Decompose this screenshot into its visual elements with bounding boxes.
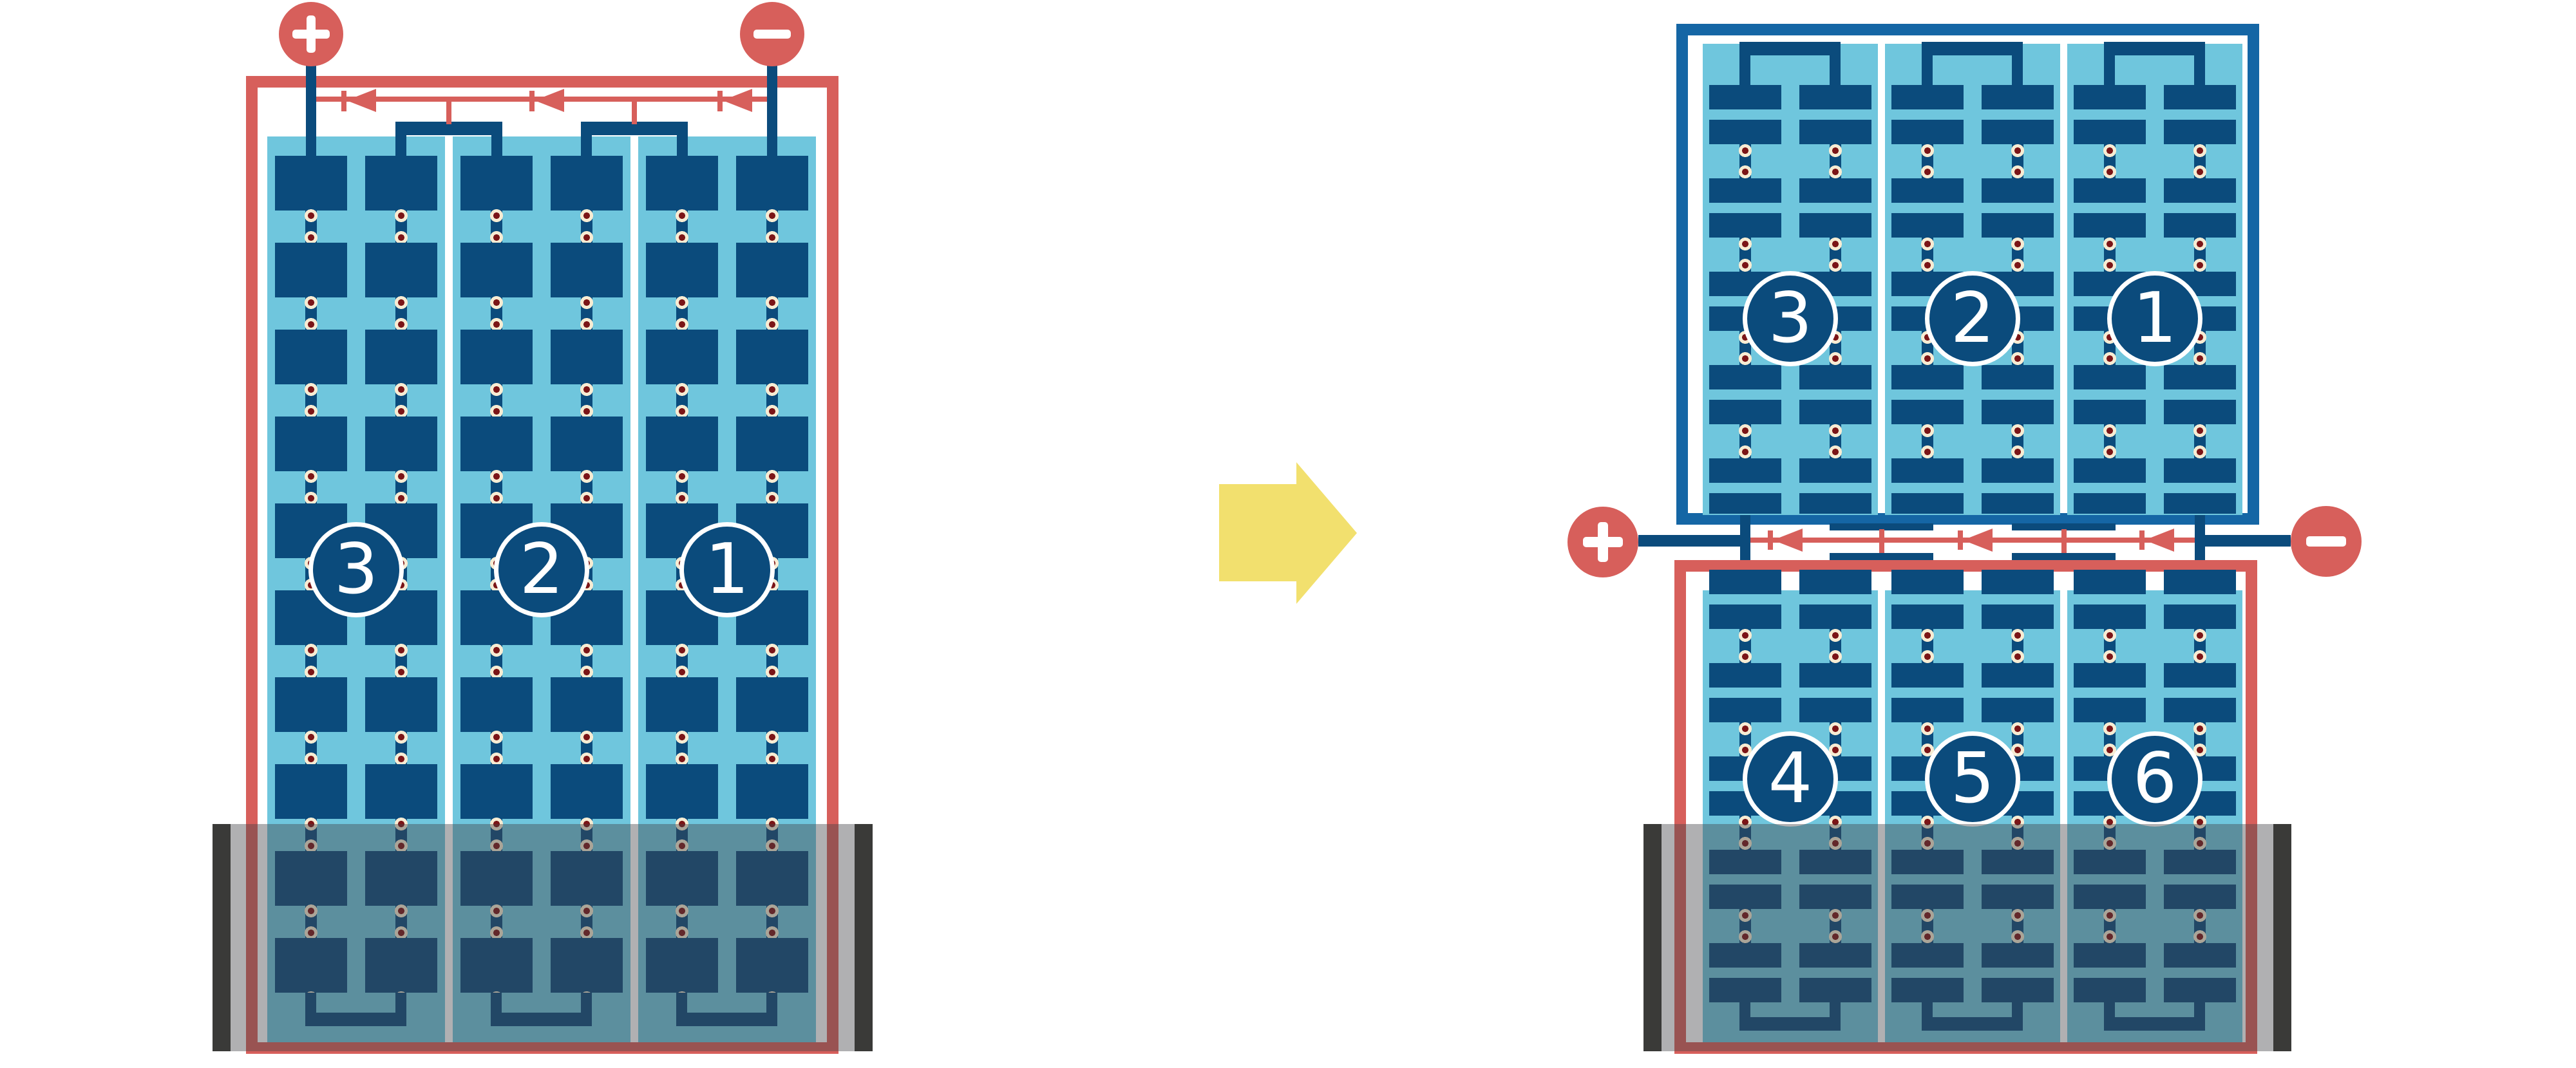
current-arrow-icon [1963,529,1993,552]
flow-tick [717,91,723,111]
top-strap [2104,42,2205,55]
cell-number-badge: 4 [1743,731,1838,827]
current-arrow-icon [723,89,752,112]
intercell-connector-leg [395,122,406,158]
flow-drop-line [632,102,637,124]
flow-drop-line [2061,529,2067,555]
flow-tick [529,91,535,111]
transform-arrow-head [1296,462,1357,604]
cell-number-badge: 2 [494,522,589,617]
flow-tick [2139,530,2145,550]
cell-number-badge: 5 [1925,731,2020,827]
flow-drop-line [1879,529,1884,555]
top-cell-group-1: 1 [2067,44,2242,515]
cell-number-badge: 1 [2107,271,2202,366]
minus-icon [2306,536,2346,547]
flow-tick [341,91,346,111]
top-strap [1922,42,2023,55]
positive-bus-bar [1638,535,1740,547]
mounting-tray [213,824,873,1051]
positive-terminal [1567,507,1638,577]
flow-drop-line [446,102,451,124]
positive-terminal [279,2,343,66]
tray-clamp [213,824,231,1051]
current-arrow-icon [1773,529,1803,552]
intercell-connector-leg [677,122,688,158]
transform-arrow-body [1219,484,1297,581]
negative-post [767,64,777,158]
negative-terminal [2291,506,2362,577]
top-strap [1739,42,1841,55]
negative-bus-bar [2205,535,2291,547]
flow-tick [1958,530,1963,550]
cell-number-badge: 3 [1743,271,1838,366]
cell-number-badge: 3 [308,522,404,617]
minus-icon [753,30,791,39]
tray-clamp [855,824,873,1051]
intercell-connector-leg [581,122,592,158]
tray-clamp [2273,824,2291,1051]
negative-terminal [740,2,804,66]
current-arrow-icon [346,89,376,112]
intercell-connector [1830,553,1933,560]
intercell-connector-leg [491,122,502,158]
top-cell-group-3: 3 [1703,44,1878,515]
current-arrow-icon [2145,529,2174,552]
top-cell-group-2: 2 [1885,44,2060,515]
cell-number-badge: 6 [2107,731,2202,827]
tray-clamp [1643,824,1662,1051]
mounting-tray [1643,824,2291,1051]
positive-post [306,64,316,158]
battery-configuration-diagram: 3 2 1 [0,0,2576,1068]
cell-number-badge: 2 [1925,271,2020,366]
intercell-connector [2012,553,2116,560]
cell-number-badge: 1 [679,522,775,617]
current-arrow-icon [535,89,564,112]
flow-tick [1768,530,1773,550]
plus-icon [307,15,316,53]
plus-icon [1598,522,1608,562]
